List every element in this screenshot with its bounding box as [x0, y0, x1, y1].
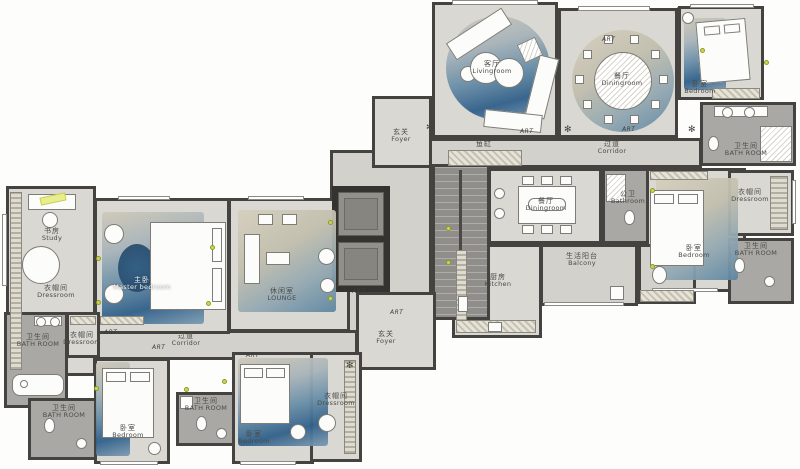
chair — [522, 176, 534, 185]
chair — [318, 414, 336, 432]
pillow — [244, 368, 263, 378]
light-fixture — [210, 245, 215, 250]
window — [544, 302, 624, 306]
sink — [764, 276, 775, 287]
room-label-corridor-right: 过道 Corridor — [598, 140, 627, 156]
room-label-foyer-bottom: 玄关 Foyer — [376, 330, 396, 346]
closet-bedroom-right — [650, 171, 708, 180]
chair — [651, 50, 660, 59]
pillow — [724, 23, 741, 33]
label-en: Dressroom — [37, 292, 75, 300]
light-fixture — [650, 188, 655, 193]
sink — [76, 438, 87, 449]
label-en: Bathroom — [611, 198, 645, 206]
room-label-kitchen: 厨房 Kitchen — [485, 273, 512, 289]
window — [240, 461, 296, 465]
window — [248, 196, 304, 200]
room-label-bedroom-bottomleft: 卧室 Bedroom — [112, 424, 144, 440]
coffee-table — [266, 252, 290, 265]
wardrobe-dressroom-right — [770, 176, 788, 230]
chair — [604, 115, 613, 124]
label-en: Bedroom — [678, 252, 710, 260]
label-en: Corridor — [172, 340, 201, 348]
room-label-bathroom-lefttop: 卫生间 BATH ROOM — [17, 333, 59, 349]
label-en: Dressroom — [731, 196, 769, 204]
label-en: Balcony — [566, 260, 598, 268]
toilet — [44, 418, 55, 433]
light-fixture — [96, 300, 101, 305]
sink — [36, 317, 46, 327]
label-en: BATH ROOM — [725, 150, 767, 158]
sink — [722, 107, 733, 118]
art-marker: ART — [152, 344, 165, 351]
chair — [630, 115, 639, 124]
lounge-chair — [22, 246, 60, 284]
label-en: Dressroom — [317, 400, 355, 408]
window — [690, 4, 754, 8]
toilet — [196, 416, 207, 431]
room-label-balcony: 生活阳台 Balcony — [566, 252, 598, 268]
light-fixture — [94, 386, 99, 391]
label-en: BATH ROOM — [185, 405, 227, 413]
chair — [522, 225, 534, 234]
label-en: Diningroom — [602, 80, 643, 88]
room-label-bathroom-leftbottom: 卫生间 BATH ROOM — [43, 404, 85, 420]
floor-plan: 客厅 Livingroom 餐厅 Diningroom 卧室 Bedroom 卫… — [0, 0, 800, 469]
room-label-bathroom-right: 卫生间 BATH ROOM — [735, 242, 777, 258]
room-label-corridor-left: 过道 Corridor — [172, 332, 201, 348]
light-fixture — [650, 264, 655, 269]
window — [100, 461, 158, 465]
sink — [744, 107, 755, 118]
room-label-dressroom-right: 衣帽间 Dressroom — [731, 188, 769, 204]
pouf — [290, 424, 306, 440]
label-en: Master bedroom — [113, 284, 171, 292]
room-foyer-bottom — [356, 292, 436, 370]
kitchen-sink — [458, 296, 468, 312]
art-marker: ART — [622, 126, 635, 133]
nightstand — [682, 12, 694, 24]
sink — [216, 428, 227, 439]
pillow — [678, 194, 698, 204]
wardrobe-dressroom-left — [70, 316, 96, 325]
pillow — [266, 368, 285, 378]
toilet — [624, 210, 635, 225]
room-label-lounge: 休闲室 LOUNGE — [267, 287, 296, 303]
closet-master — [100, 316, 144, 325]
label-en: Bedroom — [238, 438, 270, 446]
label-en: BATH ROOM — [735, 250, 777, 258]
chair — [541, 225, 553, 234]
label-en: Kitchen — [485, 281, 512, 289]
toilet — [734, 258, 745, 273]
art-marker: ART — [352, 288, 365, 295]
fish-tank-label: 鱼缸 — [476, 140, 492, 148]
art-marker: ART — [104, 329, 117, 336]
light-fixture — [700, 48, 705, 53]
side-table — [320, 278, 335, 293]
chair — [659, 75, 668, 84]
chair — [258, 214, 273, 225]
fish-tank — [448, 150, 522, 166]
stool — [148, 442, 161, 455]
room-label-study: 书房 Study — [42, 227, 62, 243]
chair — [560, 176, 572, 185]
room-label-dining-round: 餐厅 Diningroom — [602, 72, 643, 88]
closet-bedroom-topright — [712, 88, 760, 99]
chair — [630, 35, 639, 44]
room-label-dressroom-mid: 衣帽间 Dressroom — [317, 392, 355, 408]
label-en: Study — [42, 235, 62, 243]
window — [452, 0, 538, 5]
window — [118, 196, 170, 200]
label-en: BATH ROOM — [43, 412, 85, 420]
chair — [104, 224, 124, 244]
label-en: Foyer — [376, 338, 396, 346]
chair — [583, 100, 592, 109]
room-label-bedroom-right: 卧室 Bedroom — [678, 244, 710, 260]
light-fixture — [764, 60, 769, 65]
label-en: BATH ROOM — [17, 341, 59, 349]
label-zh: 鱼缸 — [476, 140, 492, 148]
plant-icon: ✻ — [564, 126, 572, 135]
window — [578, 6, 650, 11]
room-label-master-bedroom: 主卧 Master bedroom — [113, 276, 171, 292]
chair — [560, 225, 572, 234]
room-label-bathroom-bottommid: 卫生间 BATH ROOM — [185, 397, 227, 413]
light-fixture — [328, 220, 333, 225]
chair — [282, 214, 297, 225]
elevator-1-car — [344, 198, 378, 230]
chair — [583, 50, 592, 59]
light-fixture — [446, 226, 451, 231]
chair — [318, 248, 335, 265]
art-marker: ART — [602, 36, 615, 43]
art-marker: ART — [246, 352, 259, 359]
label-en: Foyer — [391, 136, 411, 144]
pillow — [212, 268, 222, 302]
light-fixture — [446, 260, 451, 265]
window — [792, 180, 796, 224]
service-hatch — [640, 290, 694, 302]
plant-icon: ✻ — [346, 362, 354, 371]
label-en: Diningroom — [526, 205, 567, 213]
bathtub-drain — [20, 380, 28, 388]
art-marker: ART — [390, 309, 403, 316]
plant-icon: ✻ — [688, 126, 696, 135]
room-label-dining-rect: 餐厅 Diningroom — [526, 197, 567, 213]
label-en: Bedroom — [684, 88, 716, 96]
light-fixture — [222, 379, 227, 384]
sofa — [244, 234, 260, 284]
room-label-bedroom-topright: 卧室 Bedroom — [684, 80, 716, 96]
decor — [494, 208, 505, 219]
sink — [50, 317, 60, 327]
window — [2, 214, 7, 286]
elevator-2-car — [344, 248, 378, 280]
light-fixture — [206, 301, 211, 306]
room-label-dressroom-left: 衣帽间 Dressroom — [63, 331, 101, 347]
pillow — [106, 372, 126, 382]
label-en: Livingroom — [472, 68, 511, 76]
light-fixture — [96, 256, 101, 261]
pillow — [130, 372, 150, 382]
room-label-livingroom: 客厅 Livingroom — [472, 60, 511, 76]
chair — [42, 212, 58, 228]
chair — [652, 266, 667, 284]
room-label-dressroom-study: 衣帽间 Dressroom — [37, 284, 75, 300]
label-en: LOUNGE — [267, 295, 296, 303]
plant-icon: ✻ — [674, 8, 682, 17]
chair — [651, 100, 660, 109]
room-label-bathroom-topright: 卫生间 BATH ROOM — [725, 142, 767, 158]
pillow — [704, 25, 721, 35]
room-label-bedroom-bottommid: 卧室 Bedroom — [238, 430, 270, 446]
stove — [488, 322, 502, 332]
room-label-bathroom-public: 公卫 Bathroom — [611, 190, 645, 206]
washer — [610, 286, 624, 300]
plant-icon: ✻ — [426, 124, 434, 133]
label-en: Dressroom — [63, 339, 101, 347]
toilet — [708, 136, 719, 151]
decor — [494, 188, 505, 199]
label-en: Bedroom — [112, 432, 144, 440]
chair — [575, 75, 584, 84]
light-fixture — [328, 296, 333, 301]
light-fixture — [184, 387, 189, 392]
chair — [541, 176, 553, 185]
art-marker: ART — [520, 128, 533, 135]
pillow — [654, 194, 674, 204]
label-en: Corridor — [598, 148, 627, 156]
room-label-foyer-top: 玄关 Foyer — [391, 128, 411, 144]
